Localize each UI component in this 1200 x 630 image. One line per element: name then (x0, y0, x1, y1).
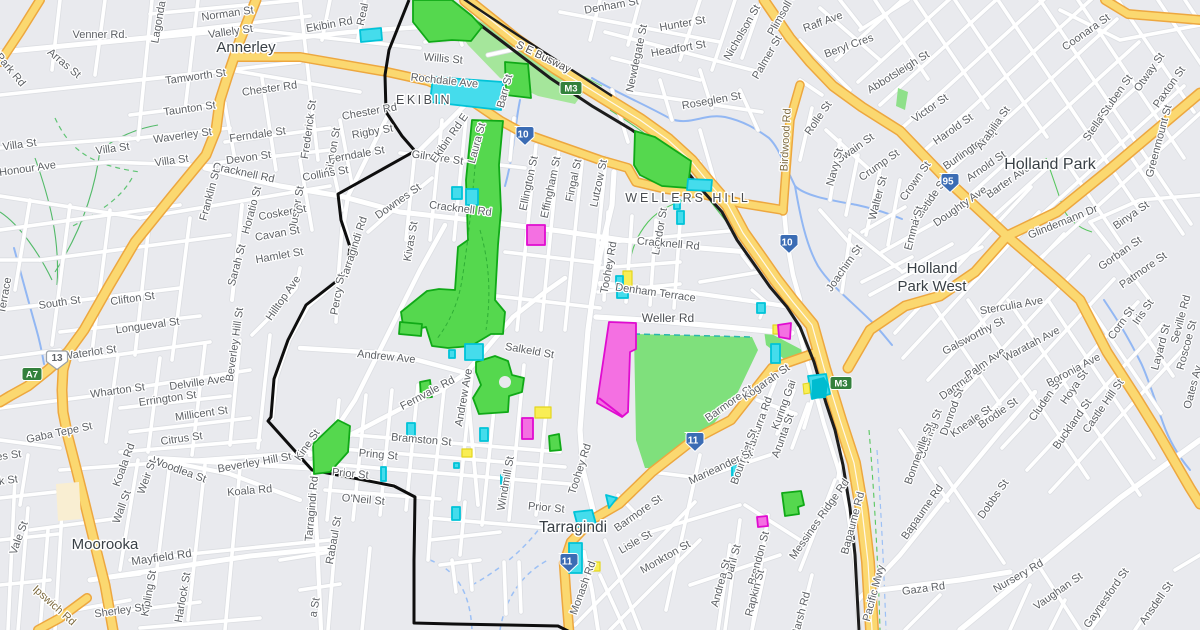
svg-text:Holland: Holland (907, 260, 958, 277)
svg-text:EKIBIN: EKIBIN (396, 93, 452, 107)
svg-text:Annerley: Annerley (216, 39, 276, 56)
svg-text:95: 95 (942, 177, 954, 188)
svg-text:13: 13 (51, 353, 63, 364)
svg-text:Venner Rd.: Venner Rd. (72, 29, 127, 41)
svg-text:M3: M3 (834, 379, 847, 390)
svg-text:M3: M3 (564, 84, 577, 95)
svg-text:Tarragindi: Tarragindi (539, 519, 607, 536)
svg-text:10: 10 (517, 130, 529, 141)
svg-text:Holland Park: Holland Park (1004, 156, 1097, 173)
svg-text:10: 10 (781, 238, 793, 249)
svg-text:11: 11 (562, 557, 573, 568)
svg-text:WELLERS HILL: WELLERS HILL (625, 191, 751, 205)
svg-text:Moorooka: Moorooka (72, 536, 139, 553)
svg-text:A7: A7 (26, 370, 38, 381)
svg-text:11: 11 (688, 436, 699, 447)
svg-text:Weller Rd: Weller Rd (642, 311, 694, 325)
svg-text:Park West: Park West (898, 278, 968, 295)
